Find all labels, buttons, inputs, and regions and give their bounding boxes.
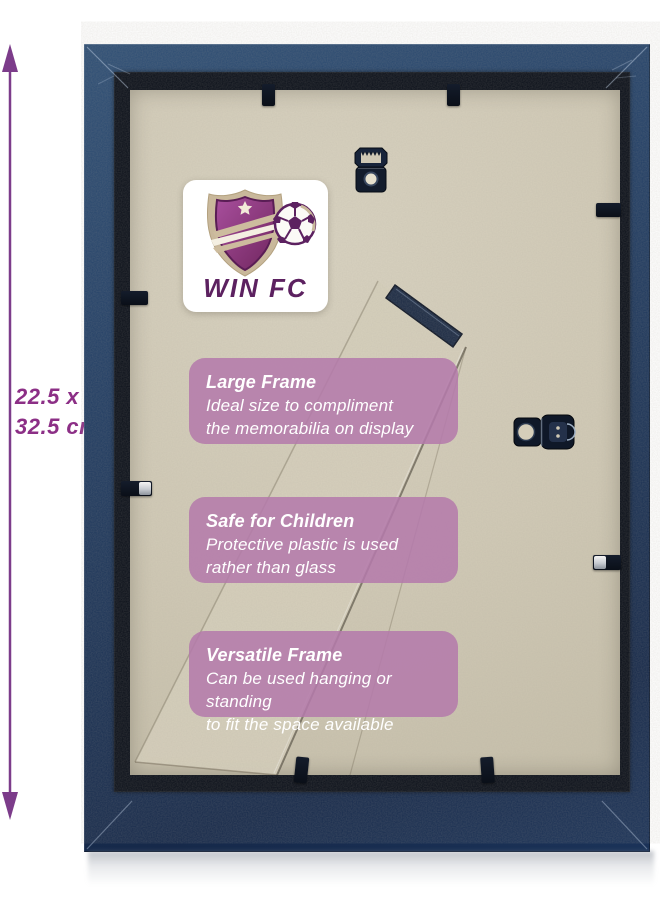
info-box-title: Safe for Children	[206, 509, 444, 533]
clip-metal-tip	[139, 482, 151, 495]
frame-drop-shadow	[88, 851, 654, 887]
arrow-down-icon	[2, 792, 18, 820]
info-box-title: Large Frame	[206, 370, 444, 394]
info-box-title: Versatile Frame	[206, 643, 444, 667]
info-box-large-frame: Large Frame Ideal size to compliment the…	[189, 358, 458, 444]
sawtooth-hanger	[352, 147, 390, 195]
info-box-line: to fit the space available	[206, 713, 444, 736]
info-box-line: Ideal size to compliment	[206, 394, 444, 417]
backing-clip-left-upper	[121, 291, 148, 305]
height-dimension-arrow	[0, 0, 40, 900]
club-crest-icon	[183, 184, 328, 280]
side-dring-hanger	[513, 413, 577, 451]
picture-frame-back: WIN FC Large Frame Ideal size to complim…	[84, 44, 650, 852]
logo-card: WIN FC	[183, 180, 328, 312]
product-photo: 22.5 x 32.5 cm	[0, 0, 660, 900]
mdf-backing-board: WIN FC Large Frame Ideal size to complim…	[130, 90, 620, 775]
arrow-up-icon	[2, 44, 18, 72]
info-box-line: rather than glass	[206, 556, 444, 579]
info-box-line: the memorabilia on display	[206, 417, 444, 440]
info-box-versatile-frame: Versatile Frame Can be used hanging or s…	[189, 631, 458, 717]
backing-clip-bottom-right	[480, 757, 495, 784]
clip-metal-tip	[594, 556, 606, 569]
backing-clip-top-right	[447, 84, 460, 106]
info-box-line: Protective plastic is used	[206, 533, 444, 556]
info-box-line: Can be used hanging or standing	[206, 667, 444, 713]
backing-clip-bottom-left	[294, 756, 310, 783]
backing-clip-right-upper	[596, 203, 621, 217]
backing-clip-left-lower	[121, 481, 152, 496]
backing-clip-right-lower	[593, 555, 621, 570]
logo-text: WIN FC	[183, 273, 328, 304]
info-box-safe-for-children: Safe for Children Protective plastic is …	[189, 497, 458, 583]
backing-clip-top-left	[262, 84, 275, 106]
